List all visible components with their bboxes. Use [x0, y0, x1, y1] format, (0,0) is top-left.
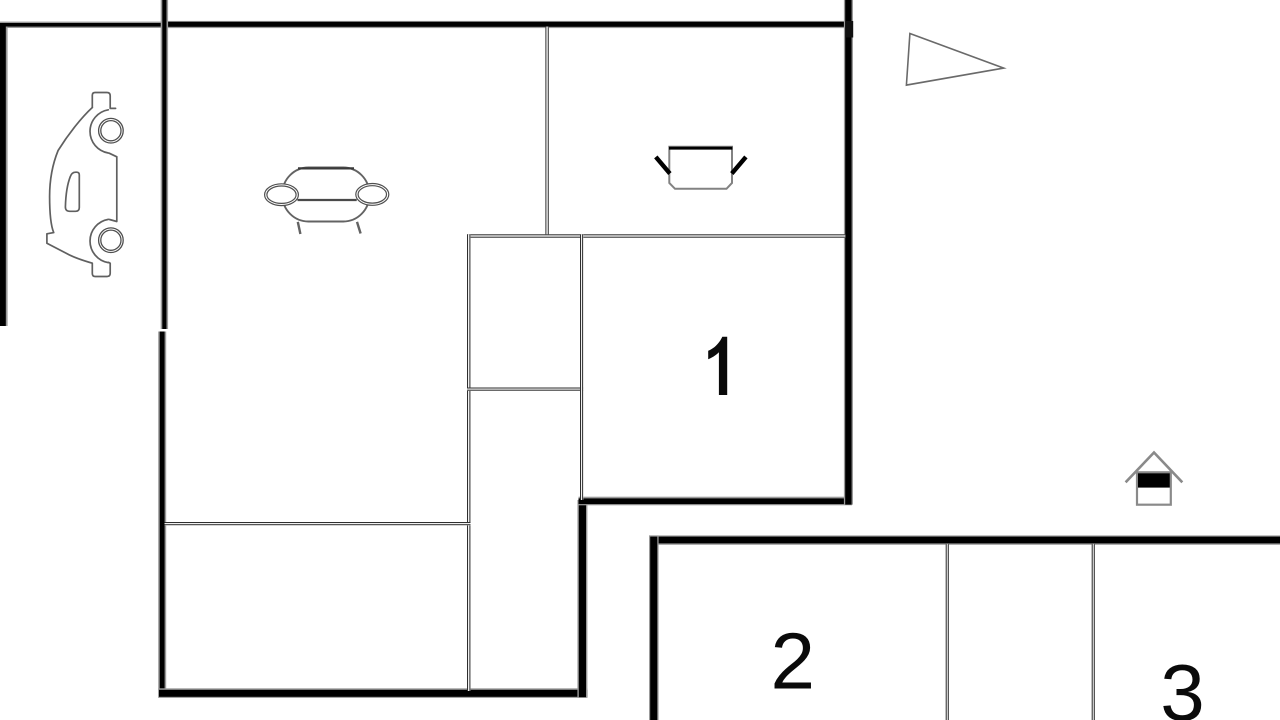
- svg-text:3: 3: [1160, 648, 1205, 720]
- svg-text:2: 2: [771, 616, 816, 705]
